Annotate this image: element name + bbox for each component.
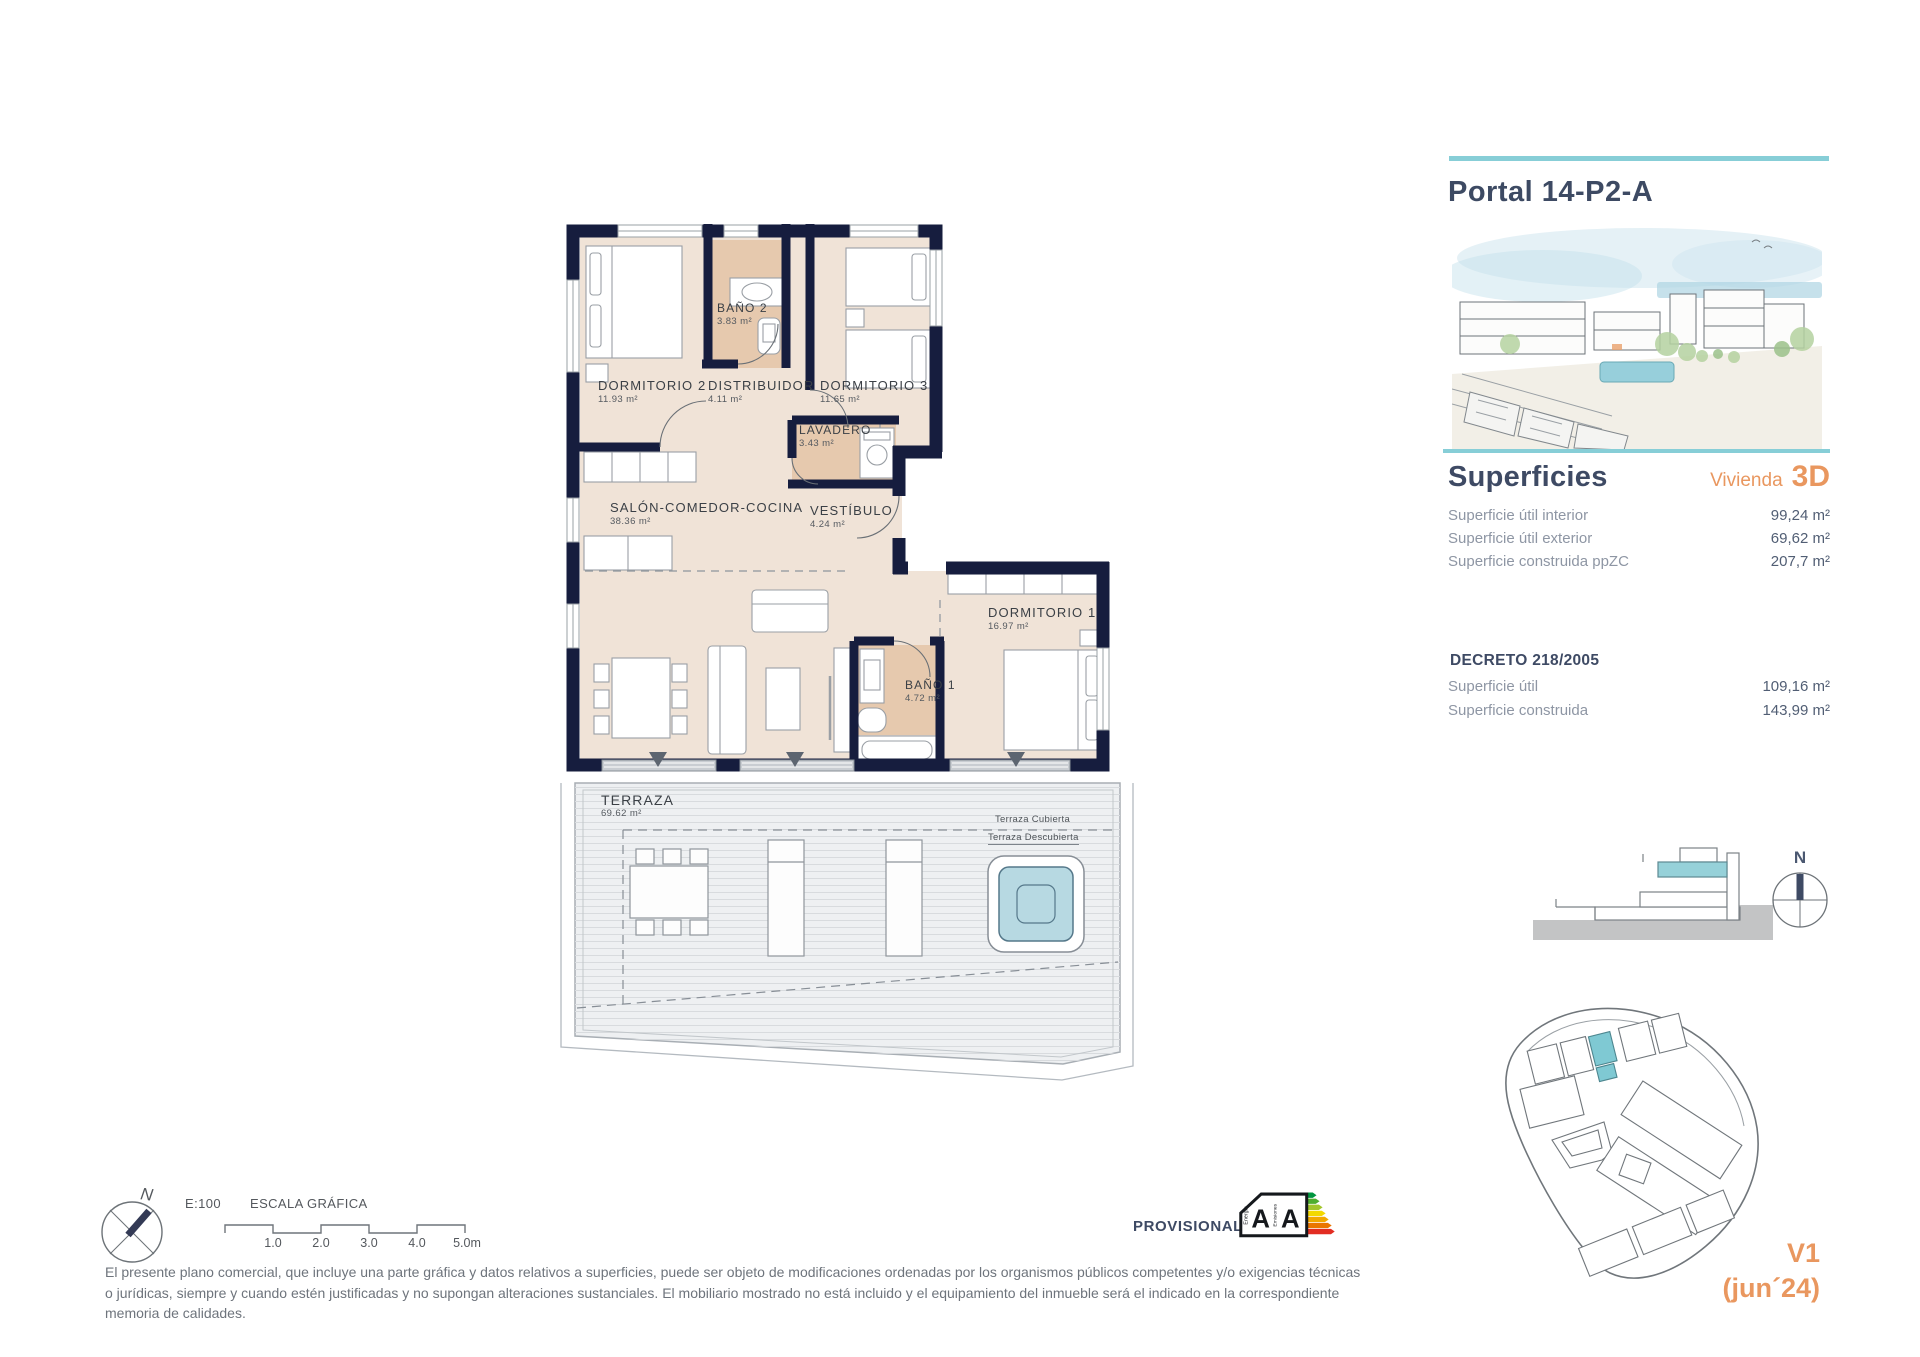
table-row: Superficie construida 143,99 m² bbox=[1448, 702, 1830, 726]
superficies-heading: Superficies bbox=[1448, 461, 1710, 494]
room-label-dormitorio-3: DORMITORIO 311.65 m² bbox=[820, 379, 928, 406]
table-row: Superficie útil exterior 69,62 m² bbox=[1448, 530, 1830, 553]
page-title: Portal 14-P2-A bbox=[1448, 176, 1830, 209]
superficies-table: Superficie útil interior 99,24 m² Superf… bbox=[1448, 507, 1830, 576]
room-label-lavadero: LAVADERO3.43 m² bbox=[799, 424, 871, 450]
svg-text:Energía: Energía bbox=[1244, 1206, 1250, 1225]
room-label-vestibulo: VESTÍBULO4.24 m² bbox=[810, 504, 893, 531]
terrace bbox=[561, 783, 1133, 1080]
sketch-pool bbox=[1600, 362, 1674, 382]
highlighted-floor bbox=[1658, 862, 1727, 877]
energy-rating-icon: Energía A Emisiones A bbox=[1237, 1188, 1337, 1238]
svg-text:A: A bbox=[1251, 1205, 1270, 1233]
version-stamp: V1 (jun´24) bbox=[1620, 1236, 1820, 1306]
terraza-cubierta-label: Terraza Cubierta bbox=[995, 814, 1070, 825]
room-label-dormitorio-1: DORMITORIO 116.97 m² bbox=[988, 606, 1096, 633]
vivienda-type: 3D bbox=[1792, 460, 1830, 494]
accent-rule-top bbox=[1449, 156, 1829, 161]
scale-bar: 1.0 2.0 3.0 4.0 5.0m bbox=[222, 1206, 487, 1251]
legal-disclaimer: El presente plano comercial, que incluye… bbox=[105, 1262, 1365, 1324]
room-label-salon: SALÓN-COMEDOR-COCINA38.36 m² bbox=[610, 501, 803, 528]
table-row: Superficie construida ppZC 207,7 m² bbox=[1448, 553, 1830, 576]
svg-text:1.0: 1.0 bbox=[264, 1236, 281, 1250]
scale-ratio: E:100 bbox=[185, 1196, 221, 1211]
table-row: Superficie útil interior 99,24 m² bbox=[1448, 507, 1830, 530]
svg-text:Emisiones: Emisiones bbox=[1272, 1203, 1278, 1226]
compass-icon-section: N bbox=[1758, 845, 1842, 940]
superficies-header: Superficies Vivienda 3D bbox=[1448, 460, 1830, 494]
decreto-table: Superficie útil 109,16 m² Superficie con… bbox=[1448, 678, 1830, 726]
room-label-terraza: TERRAZA69.62 m² bbox=[601, 792, 674, 820]
pool-icon bbox=[988, 856, 1084, 952]
svg-text:2.0: 2.0 bbox=[312, 1236, 329, 1250]
provisional-label: PROVISIONAL bbox=[1133, 1218, 1243, 1235]
room-label-bano-2: BAÑO 23.83 m² bbox=[717, 302, 768, 328]
svg-text:4.0: 4.0 bbox=[408, 1236, 425, 1250]
floor-plan-svg bbox=[460, 170, 1160, 1100]
accent-rule-superficies bbox=[1443, 449, 1830, 453]
svg-text:N: N bbox=[1794, 848, 1806, 867]
room-label-bano-1: BAÑO 14.72 m² bbox=[905, 679, 956, 705]
terraza-descubierta-label: Terraza Descubierta bbox=[988, 832, 1079, 845]
decreto-heading: DECRETO 218/2005 bbox=[1450, 652, 1599, 670]
room-label-distribuidor: DISTRIBUIDOR4.11 m² bbox=[708, 379, 814, 406]
watercolor-illustration bbox=[1452, 224, 1822, 450]
plan-sheet: DORMITORIO 211.93 m² BAÑO 23.83 m² DISTR… bbox=[0, 0, 1920, 1357]
vivienda-label: Vivienda bbox=[1710, 470, 1783, 492]
svg-text:5.0m: 5.0m bbox=[453, 1236, 481, 1250]
svg-text:N: N bbox=[139, 1184, 155, 1205]
table-row: Superficie útil 109,16 m² bbox=[1448, 678, 1830, 702]
svg-text:A: A bbox=[1281, 1205, 1300, 1233]
svg-text:3.0: 3.0 bbox=[360, 1236, 377, 1250]
room-label-dormitorio-2: DORMITORIO 211.93 m² bbox=[598, 379, 706, 406]
